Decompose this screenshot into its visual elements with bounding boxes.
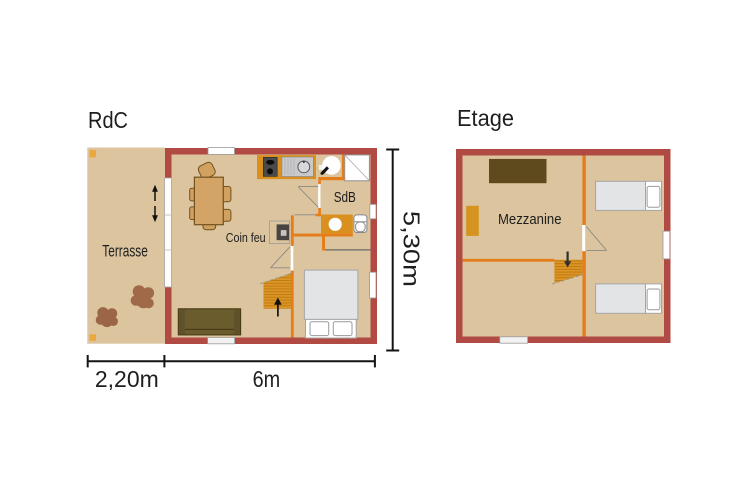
svg-text:Coin feu: Coin feu — [226, 231, 266, 245]
svg-text:SdB: SdB — [334, 190, 356, 206]
svg-text:Etage: Etage — [457, 105, 514, 131]
svg-text:6m: 6m — [253, 366, 281, 392]
svg-text:5,30m: 5,30m — [399, 211, 425, 287]
svg-text:2,20m: 2,20m — [95, 366, 159, 392]
svg-text:Terrasse: Terrasse — [102, 242, 148, 260]
svg-text:Mezzanine: Mezzanine — [498, 211, 562, 228]
svg-text:RdC: RdC — [88, 107, 128, 133]
